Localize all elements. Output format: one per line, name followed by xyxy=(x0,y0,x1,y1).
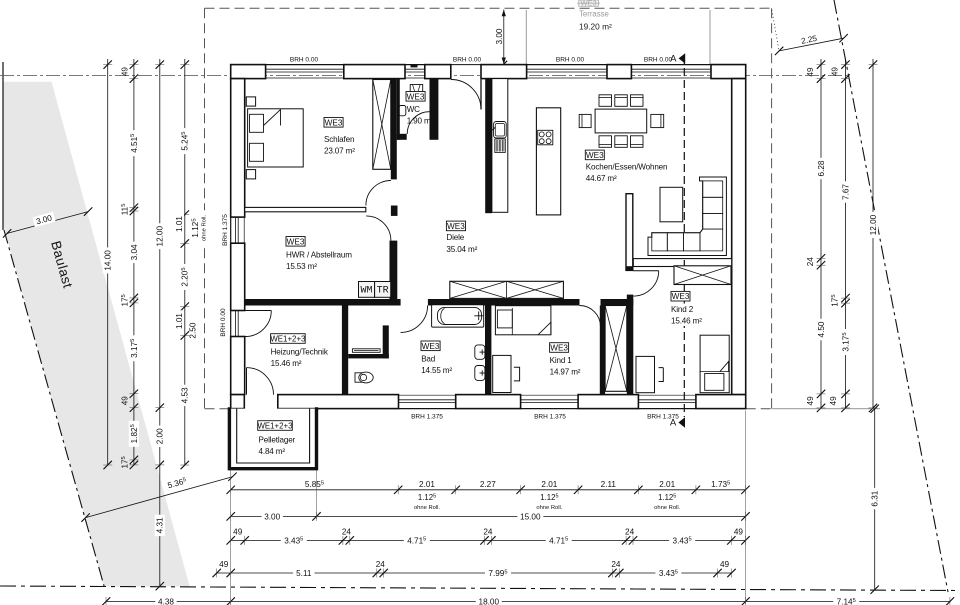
svg-text:49: 49 xyxy=(830,67,839,77)
svg-text:BRH 0.00: BRH 0.00 xyxy=(556,57,585,64)
svg-text:Diele: Diele xyxy=(446,233,464,242)
svg-text:Kind 2: Kind 2 xyxy=(671,305,694,314)
svg-text:BRH 0.00: BRH 0.00 xyxy=(453,57,482,64)
svg-text:2.00: 2.00 xyxy=(156,428,165,444)
svg-text:Terrasse: Terrasse xyxy=(579,10,609,19)
svg-text:15.46 m²: 15.46 m² xyxy=(271,359,302,368)
svg-text:BRH 0.00: BRH 0.00 xyxy=(644,57,673,64)
svg-text:24: 24 xyxy=(611,560,621,569)
svg-text:WE1+2+3: WE1+2+3 xyxy=(270,334,306,343)
svg-text:49: 49 xyxy=(120,396,129,406)
svg-text:WE3: WE3 xyxy=(550,344,568,353)
svg-text:35.04 m²: 35.04 m² xyxy=(446,245,477,254)
svg-text:14.97 m²: 14.97 m² xyxy=(550,368,581,377)
svg-text:2.50: 2.50 xyxy=(188,322,197,338)
svg-text:WE1+2+3: WE1+2+3 xyxy=(257,421,293,430)
svg-text:24: 24 xyxy=(625,527,635,536)
svg-text:BRH 0.00: BRH 0.00 xyxy=(220,308,227,337)
svg-text:4.38: 4.38 xyxy=(158,597,174,605)
svg-text:Kind 1: Kind 1 xyxy=(550,356,573,365)
svg-text:WE3: WE3 xyxy=(447,222,465,231)
svg-text:WE3: WE3 xyxy=(672,292,690,301)
svg-text:24: 24 xyxy=(376,560,386,569)
svg-text:BRH 1.375: BRH 1.375 xyxy=(647,413,679,420)
svg-text:49: 49 xyxy=(233,527,243,536)
svg-text:5.11: 5.11 xyxy=(296,569,312,578)
svg-text:12.00: 12.00 xyxy=(869,214,878,235)
svg-text:19.20 m²: 19.20 m² xyxy=(579,21,612,31)
svg-text:1.01: 1.01 xyxy=(175,313,184,329)
svg-text:BRH 1.375: BRH 1.375 xyxy=(222,214,229,246)
svg-text:2.01: 2.01 xyxy=(541,480,557,489)
svg-text:15.53 m²: 15.53 m² xyxy=(286,262,317,271)
svg-text:4.31: 4.31 xyxy=(156,517,165,533)
svg-text:49: 49 xyxy=(120,67,129,77)
svg-text:WE3: WE3 xyxy=(287,237,305,246)
svg-text:4.53: 4.53 xyxy=(181,387,190,403)
svg-text:1.01: 1.01 xyxy=(175,216,184,232)
svg-text:6.28: 6.28 xyxy=(817,160,826,176)
svg-text:24: 24 xyxy=(806,257,815,267)
svg-text:3.00: 3.00 xyxy=(495,28,504,44)
svg-text:49: 49 xyxy=(829,396,838,406)
svg-text:24: 24 xyxy=(483,527,493,536)
svg-text:23.07 m²: 23.07 m² xyxy=(324,146,355,155)
svg-text:ohne Roll.: ohne Roll. xyxy=(536,505,562,511)
svg-text:WE3: WE3 xyxy=(580,0,596,8)
svg-text:ohne Roll.: ohne Roll. xyxy=(654,505,680,511)
svg-text:14.55 m²: 14.55 m² xyxy=(421,366,452,375)
svg-text:14.00: 14.00 xyxy=(104,250,113,271)
svg-text:Kochen/Essen/Wohnen: Kochen/Essen/Wohnen xyxy=(586,162,668,171)
svg-text:24: 24 xyxy=(342,527,352,536)
svg-text:49: 49 xyxy=(720,560,730,569)
svg-text:ohne Roll.: ohne Roll. xyxy=(414,505,440,511)
svg-text:3.00: 3.00 xyxy=(264,512,280,521)
svg-text:15.46 m²: 15.46 m² xyxy=(671,317,702,326)
svg-text:ohne Roll.: ohne Roll. xyxy=(202,215,208,241)
svg-text:TR: TR xyxy=(377,286,389,297)
svg-text:44.67 m²: 44.67 m² xyxy=(586,174,617,183)
svg-text:6.31: 6.31 xyxy=(871,490,880,506)
svg-text:HWR / Abstellraum: HWR / Abstellraum xyxy=(286,250,352,259)
svg-text:Schlafen: Schlafen xyxy=(324,135,354,144)
svg-text:49: 49 xyxy=(219,560,229,569)
svg-text:4.50: 4.50 xyxy=(817,321,826,337)
svg-text:BRH 1.375: BRH 1.375 xyxy=(534,413,566,420)
svg-text:BRH 1.375: BRH 1.375 xyxy=(411,413,443,420)
svg-text:2.01: 2.01 xyxy=(419,480,435,489)
svg-text:12.00: 12.00 xyxy=(156,226,165,247)
svg-text:2.27: 2.27 xyxy=(480,480,496,489)
svg-text:WE3: WE3 xyxy=(422,342,440,351)
svg-text:7.67: 7.67 xyxy=(841,184,850,200)
svg-text:WE3: WE3 xyxy=(407,92,425,101)
svg-text:4.84 m²: 4.84 m² xyxy=(259,447,286,456)
svg-text:15.00: 15.00 xyxy=(520,512,541,521)
svg-text:49: 49 xyxy=(734,527,744,536)
svg-text:49: 49 xyxy=(806,67,815,77)
svg-text:Heizung/Technik: Heizung/Technik xyxy=(271,347,329,356)
svg-text:WE3: WE3 xyxy=(586,151,604,160)
svg-text:Pelletlager: Pelletlager xyxy=(259,435,296,444)
svg-text:Bad: Bad xyxy=(421,354,435,363)
svg-text:49: 49 xyxy=(806,396,815,406)
svg-text:18.00: 18.00 xyxy=(479,597,500,605)
svg-text:1.90 m²: 1.90 m² xyxy=(407,116,434,125)
svg-text:2.11: 2.11 xyxy=(601,480,617,489)
svg-text:2.01: 2.01 xyxy=(659,480,675,489)
svg-text:BRH 0.00: BRH 0.00 xyxy=(290,57,319,64)
svg-text:WC: WC xyxy=(407,105,420,114)
svg-text:WM: WM xyxy=(360,286,372,297)
svg-text:3.04: 3.04 xyxy=(130,244,139,260)
svg-text:WE3: WE3 xyxy=(325,118,343,127)
